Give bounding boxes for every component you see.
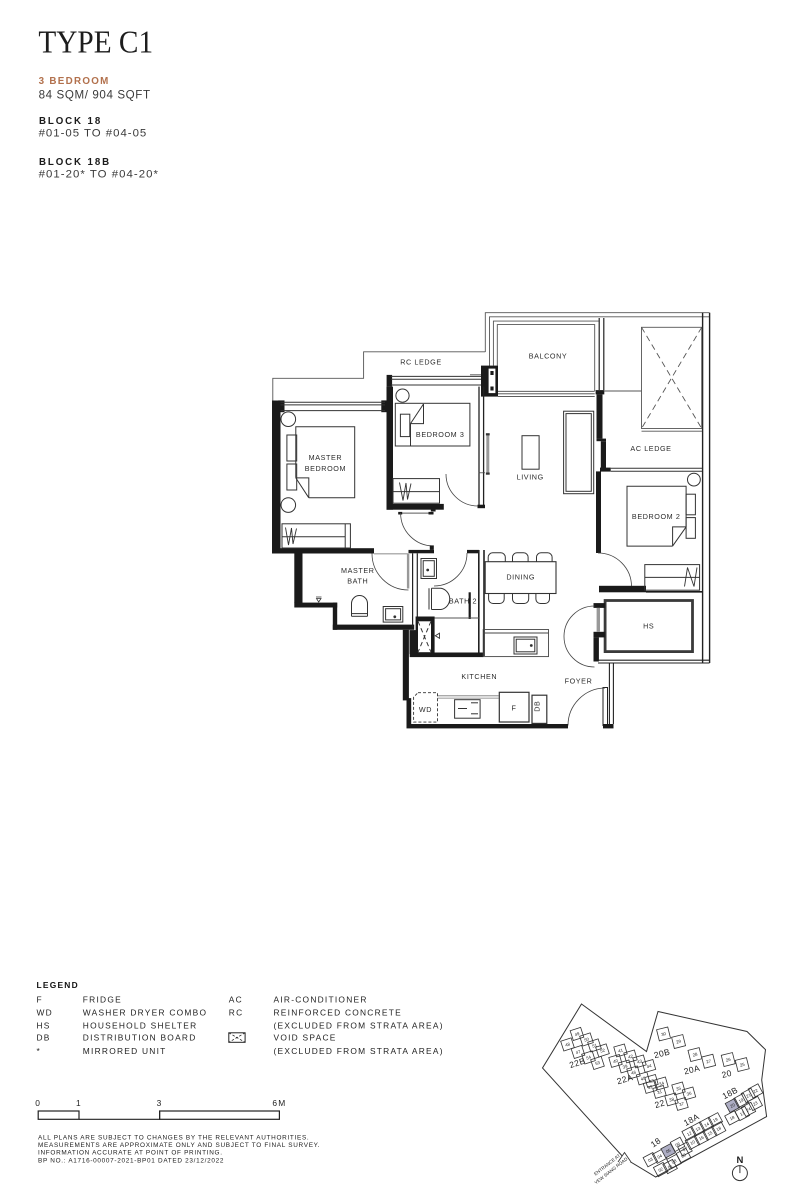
svg-text:RC: RC (229, 1008, 244, 1018)
svg-text:ALL PLANS ARE SUBJECT TO CHANG: ALL PLANS ARE SUBJECT TO CHANGES BY THE … (38, 1134, 309, 1141)
svg-text:BEDROOM 3: BEDROOM 3 (416, 430, 465, 439)
svg-text:KITCHEN: KITCHEN (461, 672, 497, 681)
svg-text:LIVING: LIVING (517, 472, 544, 481)
svg-text:AC LEDGE: AC LEDGE (630, 444, 671, 453)
svg-text:BATH: BATH (347, 577, 368, 586)
svg-text:MASTER: MASTER (309, 453, 343, 462)
svg-text:BP NO.: A1716-00007-2021-BP01: BP NO.: A1716-00007-2021-BP01 DATED 23/1… (38, 1157, 224, 1164)
svg-text:(EXCLUDED FROM STRATA AREA): (EXCLUDED FROM STRATA AREA) (274, 1021, 444, 1031)
svg-text:DINING: DINING (506, 572, 535, 581)
svg-text:VOID SPACE: VOID SPACE (274, 1033, 337, 1043)
svg-text:REINFORCED CONCRETE: REINFORCED CONCRETE (274, 1008, 402, 1018)
svg-text:3: 3 (157, 1098, 163, 1108)
svg-text:1: 1 (76, 1098, 82, 1108)
svg-text:F: F (37, 995, 43, 1005)
svg-text:(EXCLUDED FROM STRATA AREA): (EXCLUDED FROM STRATA AREA) (274, 1046, 444, 1056)
svg-text:BATH 2: BATH 2 (449, 596, 477, 605)
svg-text:BEDROOM 2: BEDROOM 2 (632, 512, 681, 521)
svg-text:WASHER DRYER COMBO: WASHER DRYER COMBO (83, 1008, 207, 1018)
svg-text:#01-05 TO #04-05: #01-05 TO #04-05 (39, 128, 148, 140)
svg-text:0: 0 (35, 1098, 41, 1108)
svg-text:LEGEND: LEGEND (37, 980, 79, 990)
svg-text:#01-20* TO #04-20*: #01-20* TO #04-20* (39, 168, 159, 180)
svg-text:N: N (736, 1155, 743, 1166)
svg-text:MASTER: MASTER (341, 566, 375, 575)
svg-text:*: * (37, 1046, 42, 1056)
svg-text:MEASUREMENTS ARE APPROXIMATE O: MEASUREMENTS ARE APPROXIMATE ONLY AND SU… (38, 1142, 320, 1149)
svg-text:AC: AC (229, 995, 243, 1005)
svg-text:FRIDGE: FRIDGE (83, 995, 122, 1005)
svg-text:HOUSEHOLD SHELTER: HOUSEHOLD SHELTER (83, 1021, 198, 1031)
svg-text:DB: DB (37, 1033, 51, 1043)
svg-text:HS: HS (643, 622, 654, 631)
svg-text:BEDROOM: BEDROOM (305, 464, 346, 473)
svg-text:DB: DB (532, 701, 541, 712)
svg-text:DISTRIBUTION BOARD: DISTRIBUTION BOARD (83, 1033, 197, 1043)
svg-text:FOYER: FOYER (565, 677, 593, 686)
svg-text:BLOCK 18B: BLOCK 18B (39, 157, 111, 168)
svg-text:INFORMATION ACCURATE AT POINT: INFORMATION ACCURATE AT POINT OF PRINTIN… (38, 1150, 223, 1157)
svg-text:AIR-CONDITIONER: AIR-CONDITIONER (274, 995, 368, 1005)
svg-text:HS: HS (37, 1021, 51, 1031)
svg-text:84 SQM/ 904 SQFT: 84 SQM/ 904 SQFT (39, 89, 151, 102)
svg-text:RC LEDGE: RC LEDGE (400, 358, 442, 367)
svg-text:BLOCK 18: BLOCK 18 (39, 116, 102, 127)
svg-text:MIRRORED UNIT: MIRRORED UNIT (83, 1046, 167, 1056)
svg-text:6M: 6M (272, 1098, 286, 1108)
svg-text:TYPE C1: TYPE C1 (38, 24, 153, 60)
svg-text:WD: WD (419, 705, 432, 714)
svg-text:F: F (512, 703, 517, 712)
svg-text:BALCONY: BALCONY (529, 352, 568, 361)
svg-text:3 BEDROOM: 3 BEDROOM (39, 76, 110, 87)
svg-text:WD: WD (37, 1008, 53, 1018)
